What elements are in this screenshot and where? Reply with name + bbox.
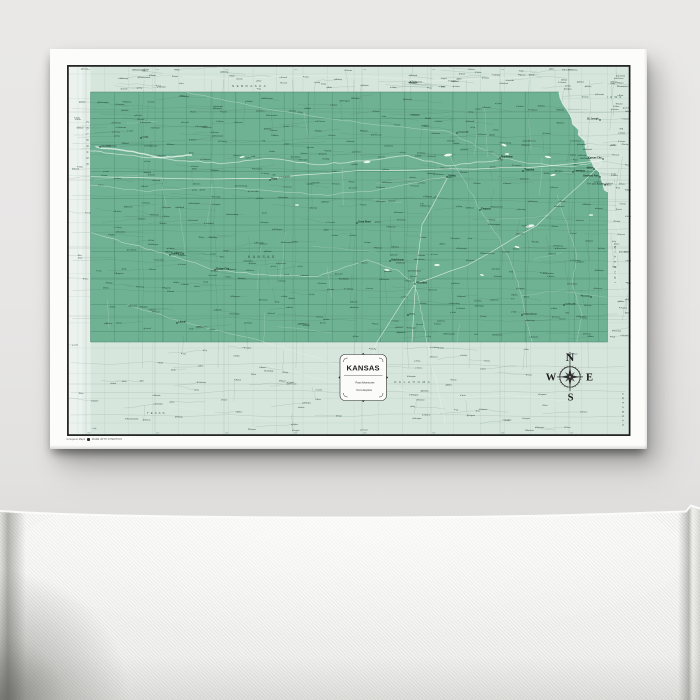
svg-text:Osborne: Osborne bbox=[454, 86, 460, 88]
svg-text:Council: Council bbox=[523, 225, 530, 227]
svg-text:Coffeyville: Coffeyville bbox=[565, 303, 576, 305]
svg-text:Harper: Harper bbox=[338, 415, 343, 417]
svg-text:Osborne: Osborne bbox=[143, 202, 150, 205]
svg-text:Fredonia: Fredonia bbox=[319, 282, 327, 285]
svg-text:Herington: Herington bbox=[408, 326, 415, 329]
svg-text:Lakin: Lakin bbox=[492, 167, 496, 169]
svg-text:City: City bbox=[299, 111, 302, 114]
svg-text:Russell: Russell bbox=[467, 121, 474, 123]
svg-text:Hugoton: Hugoton bbox=[518, 287, 525, 290]
svg-text:Johnson: Johnson bbox=[492, 300, 498, 302]
svg-text:Oberlin: Oberlin bbox=[76, 119, 81, 121]
svg-text:McPherson: McPherson bbox=[373, 135, 382, 137]
svg-text:Lakin: Lakin bbox=[436, 323, 442, 325]
svg-text:Leoti: Leoti bbox=[105, 170, 110, 173]
svg-text:Hoxie: Hoxie bbox=[290, 298, 295, 300]
svg-text:McPherson: McPherson bbox=[415, 258, 425, 261]
svg-text:Gove: Gove bbox=[625, 86, 629, 88]
svg-text:Council: Council bbox=[544, 133, 551, 135]
svg-text:Holton: Holton bbox=[351, 234, 356, 237]
svg-text:Greensburg: Greensburg bbox=[237, 186, 248, 188]
svg-text:Herington: Herington bbox=[408, 375, 415, 378]
svg-text:Howard: Howard bbox=[585, 333, 591, 336]
svg-text:Oskaloosa: Oskaloosa bbox=[435, 174, 444, 176]
svg-text:Eureka: Eureka bbox=[115, 210, 122, 213]
svg-text:Montezuma: Montezuma bbox=[142, 121, 151, 124]
svg-text:Nickerson: Nickerson bbox=[144, 420, 150, 422]
svg-text:Westmoreland: Westmoreland bbox=[134, 69, 145, 72]
svg-text:Girard: Girard bbox=[417, 81, 422, 84]
svg-text:Lincoln: Lincoln bbox=[336, 274, 342, 276]
svg-text:Newton: Newton bbox=[353, 97, 360, 100]
svg-text:Wellington: Wellington bbox=[411, 394, 419, 397]
svg-text:City: City bbox=[323, 83, 326, 86]
svg-text:Haven: Haven bbox=[161, 223, 166, 225]
svg-text:Ottawa: Ottawa bbox=[483, 76, 489, 79]
svg-text:Derby: Derby bbox=[284, 372, 288, 374]
svg-text:Nickerson: Nickerson bbox=[214, 135, 224, 138]
svg-text:Chanute: Chanute bbox=[405, 98, 413, 101]
svg-text:City: City bbox=[470, 111, 473, 114]
svg-text:Andover: Andover bbox=[239, 277, 246, 280]
svg-text:Newton: Newton bbox=[150, 309, 156, 312]
svg-text:Salina: Salina bbox=[477, 72, 482, 74]
svg-text:Wellington: Wellington bbox=[596, 269, 604, 272]
svg-text:Lindsborg: Lindsborg bbox=[266, 369, 273, 372]
svg-text:Seneca: Seneca bbox=[302, 275, 310, 277]
svg-text:Howard: Howard bbox=[442, 166, 449, 169]
svg-text:Seneca: Seneca bbox=[552, 187, 559, 189]
svg-text:Oakley: Oakley bbox=[282, 296, 287, 298]
svg-text:Russell: Russell bbox=[412, 276, 418, 278]
svg-text:Pittsburg: Pittsburg bbox=[398, 219, 405, 222]
svg-text:Scott: Scott bbox=[143, 185, 148, 188]
svg-text:Montezuma: Montezuma bbox=[557, 247, 568, 250]
svg-text:Tribune: Tribune bbox=[361, 262, 369, 264]
svg-text:Parsons: Parsons bbox=[554, 316, 560, 319]
svg-text:COLORADO: COLORADO bbox=[86, 121, 90, 169]
svg-text:Erie: Erie bbox=[222, 256, 225, 258]
svg-text:Newton: Newton bbox=[193, 165, 199, 168]
svg-text:Kingman: Kingman bbox=[530, 109, 538, 111]
svg-text:Larned: Larned bbox=[351, 187, 357, 189]
svg-text:Lindsborg: Lindsborg bbox=[340, 278, 348, 280]
svg-text:Andover: Andover bbox=[398, 331, 406, 334]
svg-text:Lyons: Lyons bbox=[442, 78, 447, 80]
svg-text:Cheney: Cheney bbox=[116, 227, 122, 229]
svg-text:Andover: Andover bbox=[558, 122, 565, 125]
svg-text:Lincoln: Lincoln bbox=[367, 288, 373, 290]
svg-text:Ottawa: Ottawa bbox=[419, 182, 426, 185]
svg-text:Iola: Iola bbox=[124, 381, 127, 383]
svg-text:Topeka: Topeka bbox=[524, 167, 534, 171]
svg-text:Salina: Salina bbox=[458, 206, 463, 208]
svg-text:Minneapolis: Minneapolis bbox=[190, 203, 200, 205]
svg-text:Osborne: Osborne bbox=[436, 120, 443, 123]
svg-text:Syracuse: Syracuse bbox=[520, 74, 526, 76]
svg-text:Jetmore: Jetmore bbox=[354, 151, 362, 154]
svg-text:Marion: Marion bbox=[491, 219, 496, 221]
svg-text:Lakin: Lakin bbox=[305, 76, 309, 78]
svg-text:Douglass: Douglass bbox=[566, 89, 573, 91]
svg-text:Mankato: Mankato bbox=[362, 84, 369, 87]
svg-text:Minneapolis: Minneapolis bbox=[267, 115, 277, 117]
svg-text:Ashland: Ashland bbox=[361, 129, 367, 132]
svg-text:106°: 106° bbox=[501, 69, 505, 71]
svg-text:St. Joseph: St. Joseph bbox=[587, 117, 599, 120]
svg-text:Overland Park: Overland Park bbox=[583, 175, 599, 177]
svg-text:Wellington: Wellington bbox=[150, 243, 159, 246]
svg-text:Stafford: Stafford bbox=[247, 100, 253, 103]
svg-text:Wichita: Wichita bbox=[416, 280, 427, 284]
svg-text:Anthony: Anthony bbox=[527, 319, 534, 322]
svg-text:Florence: Florence bbox=[431, 357, 437, 359]
svg-text:Ottawa: Ottawa bbox=[419, 152, 426, 155]
svg-text:Smith: Smith bbox=[417, 155, 422, 158]
svg-text:Greensburg: Greensburg bbox=[231, 313, 240, 315]
svg-text:Girard: Girard bbox=[390, 200, 396, 202]
svg-text:McPherson: McPherson bbox=[317, 120, 326, 123]
svg-text:Leoti: Leoti bbox=[192, 110, 196, 113]
svg-text:Lakin: Lakin bbox=[129, 131, 134, 133]
svg-text:Council: Council bbox=[571, 233, 577, 235]
svg-text:Kingman: Kingman bbox=[523, 145, 530, 147]
svg-text:Parsons: Parsons bbox=[260, 300, 267, 302]
svg-text:Ellsworth: Ellsworth bbox=[578, 315, 586, 318]
svg-text:Ness: Ness bbox=[99, 185, 103, 187]
svg-text:Meade: Meade bbox=[563, 80, 567, 82]
svg-text:Elkhart: Elkhart bbox=[304, 324, 310, 327]
svg-text:Lawrence: Lawrence bbox=[574, 170, 585, 172]
svg-text:Stockton: Stockton bbox=[398, 261, 405, 264]
svg-text:Russell: Russell bbox=[182, 122, 189, 124]
svg-text:Ottawa: Ottawa bbox=[246, 322, 253, 325]
svg-text:Past Adventures: Past Adventures bbox=[356, 381, 376, 385]
svg-text:Kingman: Kingman bbox=[468, 415, 475, 417]
svg-text:City: City bbox=[264, 212, 267, 215]
svg-text:Goddard: Goddard bbox=[205, 222, 214, 225]
svg-text:Haven: Haven bbox=[212, 270, 218, 272]
svg-text:Oskaloosa: Oskaloosa bbox=[560, 82, 567, 84]
svg-text:Harper: Harper bbox=[366, 241, 372, 244]
svg-text:City: City bbox=[469, 237, 472, 240]
svg-text:Gove: Gove bbox=[574, 159, 578, 161]
svg-text:Bucklin: Bucklin bbox=[123, 110, 129, 112]
svg-text:Ulysses: Ulysses bbox=[235, 122, 242, 124]
svg-text:Paola: Paola bbox=[146, 161, 151, 163]
svg-text:Florence: Florence bbox=[334, 183, 341, 186]
svg-text:Washington: Washington bbox=[490, 223, 501, 226]
svg-text:Westmoreland: Westmoreland bbox=[126, 418, 138, 421]
svg-text:Alma: Alma bbox=[325, 229, 329, 232]
svg-text:Haven: Haven bbox=[302, 153, 307, 155]
svg-text:Mulvane: Mulvane bbox=[204, 127, 212, 129]
svg-text:Lees Summit: Lees Summit bbox=[592, 182, 604, 185]
svg-text:Oberlin: Oberlin bbox=[215, 310, 221, 312]
svg-text:Concordia: Concordia bbox=[250, 191, 260, 193]
svg-text:Ellsworth: Ellsworth bbox=[517, 233, 524, 236]
svg-text:Osborne: Osborne bbox=[620, 133, 626, 135]
svg-text:City: City bbox=[200, 236, 203, 239]
svg-text:Norton: Norton bbox=[194, 183, 200, 186]
svg-text:Osborne: Osborne bbox=[280, 176, 289, 179]
svg-text:Parsons: Parsons bbox=[154, 311, 160, 313]
svg-text:Leoti: Leoti bbox=[98, 269, 102, 272]
svg-text:McPherson: McPherson bbox=[288, 383, 297, 386]
svg-text:S: S bbox=[568, 393, 574, 404]
svg-text:Abilene: Abilene bbox=[273, 134, 279, 137]
svg-text:Osborne: Osborne bbox=[423, 415, 430, 417]
svg-text:Greensburg: Greensburg bbox=[450, 303, 460, 305]
svg-text:Oskaloosa: Oskaloosa bbox=[458, 308, 466, 310]
svg-text:Seneca: Seneca bbox=[114, 132, 121, 134]
svg-text:Center: Center bbox=[317, 389, 323, 392]
svg-text:Herington: Herington bbox=[377, 200, 386, 203]
svg-text:Howard: Howard bbox=[428, 173, 434, 175]
svg-text:Lincoln: Lincoln bbox=[380, 157, 385, 159]
svg-text:Plains: Plains bbox=[525, 349, 529, 351]
svg-text:Wellington: Wellington bbox=[476, 305, 484, 308]
svg-text:Stockton: Stockton bbox=[418, 398, 425, 401]
svg-text:100°: 100° bbox=[87, 69, 91, 71]
svg-text:Manhattan: Manhattan bbox=[501, 155, 513, 158]
svg-text:Seneca: Seneca bbox=[417, 368, 423, 370]
svg-text:Ulysses: Ulysses bbox=[480, 134, 487, 136]
svg-text:Tribune: Tribune bbox=[115, 178, 120, 180]
svg-text:Mankato: Mankato bbox=[124, 100, 131, 103]
svg-text:101°: 101° bbox=[156, 69, 160, 71]
svg-text:Columbus: Columbus bbox=[571, 260, 580, 262]
svg-text:Tribune: Tribune bbox=[615, 106, 620, 108]
svg-text:NEBRASKA: NEBRASKA bbox=[232, 84, 268, 88]
svg-text:Oberlin: Oberlin bbox=[149, 175, 154, 177]
svg-text:Johnson: Johnson bbox=[378, 187, 385, 189]
svg-text:Lakin: Lakin bbox=[333, 235, 338, 237]
svg-text:Washington: Washington bbox=[458, 247, 467, 250]
svg-text:Ness: Ness bbox=[105, 287, 109, 289]
svg-text:Salina: Salina bbox=[475, 183, 481, 185]
svg-text:Mound: Mound bbox=[397, 327, 403, 329]
svg-text:Cheney: Cheney bbox=[263, 173, 269, 175]
svg-text:Paola: Paola bbox=[612, 336, 616, 338]
svg-text:Lindsborg: Lindsborg bbox=[493, 75, 500, 77]
svg-text:Minneapolis: Minneapolis bbox=[282, 242, 292, 244]
svg-text:Lincoln: Lincoln bbox=[617, 209, 622, 211]
svg-text:KANSAS: KANSAS bbox=[248, 255, 277, 259]
svg-text:Cheney: Cheney bbox=[530, 141, 536, 143]
svg-text:Kinsley: Kinsley bbox=[371, 348, 377, 350]
svg-text:Sublette: Sublette bbox=[320, 152, 327, 155]
svg-text:Syracuse: Syracuse bbox=[278, 262, 286, 265]
svg-text:Hoxie: Hoxie bbox=[350, 181, 355, 183]
svg-text:104°: 104° bbox=[363, 69, 367, 71]
svg-text:Alma: Alma bbox=[589, 335, 595, 338]
svg-text:Gove: Gove bbox=[482, 369, 486, 371]
svg-text:Lindsborg: Lindsborg bbox=[128, 250, 136, 252]
svg-text:Eureka: Eureka bbox=[476, 300, 483, 303]
svg-text:Seneca: Seneca bbox=[582, 412, 588, 414]
svg-text:Haven: Haven bbox=[84, 278, 88, 280]
svg-text:Mankato: Mankato bbox=[375, 246, 382, 249]
svg-text:Independence: Independence bbox=[523, 313, 537, 315]
svg-text:Lindsborg: Lindsborg bbox=[432, 346, 439, 349]
svg-text:Beloit: Beloit bbox=[491, 134, 496, 137]
svg-text:Mankato: Mankato bbox=[141, 305, 148, 308]
svg-text:Leoti: Leoti bbox=[285, 125, 290, 128]
svg-text:Seneca: Seneca bbox=[595, 288, 603, 290]
svg-text:Stafford: Stafford bbox=[177, 206, 184, 209]
svg-text:Rolla: Rolla bbox=[111, 307, 115, 309]
svg-text:Cheney: Cheney bbox=[137, 286, 144, 288]
svg-text:ARKANSAS: ARKANSAS bbox=[621, 393, 625, 428]
svg-text:Ashland: Ashland bbox=[453, 282, 460, 285]
svg-text:Alma: Alma bbox=[441, 243, 445, 246]
svg-text:Westmoreland: Westmoreland bbox=[492, 206, 503, 209]
svg-text:Iola: Iola bbox=[305, 160, 308, 162]
svg-text:105°: 105° bbox=[432, 69, 436, 71]
svg-text:Haven: Haven bbox=[621, 184, 625, 186]
svg-text:Sharon: Sharon bbox=[183, 283, 189, 286]
svg-text:Bucklin: Bucklin bbox=[462, 355, 468, 357]
svg-text:Kansas City: Kansas City bbox=[588, 156, 602, 159]
svg-text:Salina: Salina bbox=[448, 174, 456, 177]
svg-text:Greensburg: Greensburg bbox=[618, 76, 626, 78]
svg-text:Minneapolis: Minneapolis bbox=[555, 206, 564, 208]
svg-text:Florence: Florence bbox=[425, 195, 432, 198]
svg-text:Plains: Plains bbox=[412, 81, 417, 83]
svg-text:Derby: Derby bbox=[409, 313, 415, 315]
svg-text:City: City bbox=[428, 335, 431, 338]
svg-text:City: City bbox=[276, 301, 279, 304]
svg-text:Atwood: Atwood bbox=[130, 305, 138, 308]
svg-text:Scott: Scott bbox=[462, 394, 466, 397]
svg-text:Oskaloosa: Oskaloosa bbox=[480, 409, 487, 411]
svg-text:Wakeeney: Wakeeney bbox=[120, 78, 129, 80]
svg-text:Gove: Gove bbox=[180, 83, 184, 85]
svg-text:Wakeeney: Wakeeney bbox=[530, 201, 538, 203]
svg-text:Augusta: Augusta bbox=[531, 336, 539, 339]
svg-text:Kingman: Kingman bbox=[262, 222, 269, 224]
svg-text:Cheney: Cheney bbox=[220, 141, 228, 143]
svg-text:Hoxie: Hoxie bbox=[112, 383, 116, 385]
svg-text:Hugoton: Hugoton bbox=[214, 203, 221, 206]
svg-text:Meade: Meade bbox=[560, 201, 566, 203]
svg-text:Leoti: Leoti bbox=[411, 176, 416, 179]
svg-text:Seneca: Seneca bbox=[261, 367, 266, 369]
svg-text:Concordia: Concordia bbox=[117, 104, 124, 106]
svg-text:Holton: Holton bbox=[288, 306, 293, 309]
svg-text:Lyons: Lyons bbox=[477, 109, 482, 111]
svg-text:Holton: Holton bbox=[454, 142, 459, 145]
svg-text:Florence: Florence bbox=[618, 82, 624, 84]
svg-text:Larned: Larned bbox=[624, 108, 629, 110]
svg-text:Lyons: Lyons bbox=[440, 86, 444, 88]
svg-text:Emporia: Emporia bbox=[481, 208, 491, 210]
svg-text:Ashland: Ashland bbox=[385, 270, 391, 273]
svg-text:Marion: Marion bbox=[362, 204, 367, 206]
svg-text:W: W bbox=[546, 373, 557, 384]
svg-text:Colby: Colby bbox=[142, 136, 149, 138]
svg-text:Greensburg: Greensburg bbox=[614, 330, 622, 332]
svg-text:Lindsborg: Lindsborg bbox=[292, 156, 300, 158]
svg-text:Marion: Marion bbox=[373, 322, 378, 325]
svg-text:Nickerson: Nickerson bbox=[384, 182, 392, 184]
svg-text:Gove: Gove bbox=[486, 360, 490, 362]
svg-text:Rose: Rose bbox=[257, 81, 261, 83]
svg-text:Larned: Larned bbox=[418, 324, 423, 326]
svg-text:Derby: Derby bbox=[533, 241, 538, 243]
svg-text:Marion: Marion bbox=[266, 250, 272, 253]
svg-text:Oswego: Oswego bbox=[392, 321, 399, 323]
svg-text:Wellington: Wellington bbox=[274, 228, 283, 231]
svg-text:TEXAS: TEXAS bbox=[147, 411, 166, 415]
svg-text:Columbus: Columbus bbox=[612, 109, 619, 111]
svg-text:Dighton: Dighton bbox=[250, 262, 256, 265]
svg-text:Pratt: Pratt bbox=[150, 239, 154, 242]
svg-text:Chanute: Chanute bbox=[412, 184, 419, 187]
svg-text:Hugoton: Hugoton bbox=[164, 286, 171, 289]
svg-text:Sedan: Sedan bbox=[376, 222, 381, 224]
svg-text:Beloit: Beloit bbox=[513, 294, 518, 297]
svg-text:Eureka: Eureka bbox=[136, 115, 142, 117]
svg-text:Russell: Russell bbox=[281, 77, 287, 79]
svg-text:Oskaloosa: Oskaloosa bbox=[572, 141, 582, 143]
svg-text:Oberlin: Oberlin bbox=[313, 182, 321, 185]
svg-text:Mulvane: Mulvane bbox=[247, 270, 254, 272]
svg-text:Ashland: Ashland bbox=[351, 306, 359, 309]
svg-text:Coldwater: Coldwater bbox=[117, 126, 127, 129]
svg-text:Columbus: Columbus bbox=[513, 165, 521, 167]
svg-text:Russell: Russell bbox=[392, 255, 398, 257]
svg-text:Garnett: Garnett bbox=[503, 251, 510, 254]
svg-text:Paola: Paola bbox=[176, 69, 180, 71]
svg-text:Jetmore: Jetmore bbox=[439, 320, 445, 323]
svg-text:Mankato: Mankato bbox=[348, 140, 355, 143]
svg-text:Smith: Smith bbox=[530, 74, 534, 77]
svg-text:Larned: Larned bbox=[149, 100, 154, 103]
svg-text:Ness: Ness bbox=[171, 402, 175, 404]
svg-text:Sterling: Sterling bbox=[222, 71, 228, 74]
svg-text:Kinsley: Kinsley bbox=[311, 208, 317, 210]
svg-text:Sharon: Sharon bbox=[300, 160, 305, 162]
svg-text:Ness: Ness bbox=[196, 286, 200, 288]
svg-text:Florence: Florence bbox=[505, 182, 512, 185]
svg-text:Florence: Florence bbox=[388, 227, 397, 229]
svg-text:Johnson: Johnson bbox=[152, 128, 160, 130]
svg-text:Garden City: Garden City bbox=[171, 252, 185, 255]
svg-text:Parsons: Parsons bbox=[395, 211, 403, 214]
svg-text:Mulvane: Mulvane bbox=[212, 132, 218, 134]
svg-text:Plains: Plains bbox=[575, 164, 580, 166]
svg-text:City: City bbox=[191, 152, 194, 155]
svg-text:Anthony: Anthony bbox=[336, 78, 342, 81]
svg-text:Ness: Ness bbox=[227, 276, 232, 278]
svg-text:Larned: Larned bbox=[74, 345, 79, 347]
svg-text:Great Bend: Great Bend bbox=[358, 220, 371, 223]
svg-text:Alma: Alma bbox=[550, 68, 554, 71]
svg-text:Fredonia: Fredonia bbox=[556, 171, 562, 173]
svg-text:Sedan: Sedan bbox=[440, 348, 444, 350]
svg-text:MISSOURI: MISSOURI bbox=[613, 246, 617, 286]
svg-text:Mulvane: Mulvane bbox=[299, 407, 304, 409]
svg-text:Norton: Norton bbox=[352, 301, 358, 304]
svg-text:Newton: Newton bbox=[461, 171, 467, 174]
svg-text:Scott: Scott bbox=[118, 322, 122, 325]
svg-text:Salina: Salina bbox=[308, 184, 313, 186]
svg-text:Ness: Ness bbox=[317, 399, 321, 401]
svg-text:Derby: Derby bbox=[600, 248, 605, 250]
svg-text:Lyons: Lyons bbox=[497, 103, 502, 105]
